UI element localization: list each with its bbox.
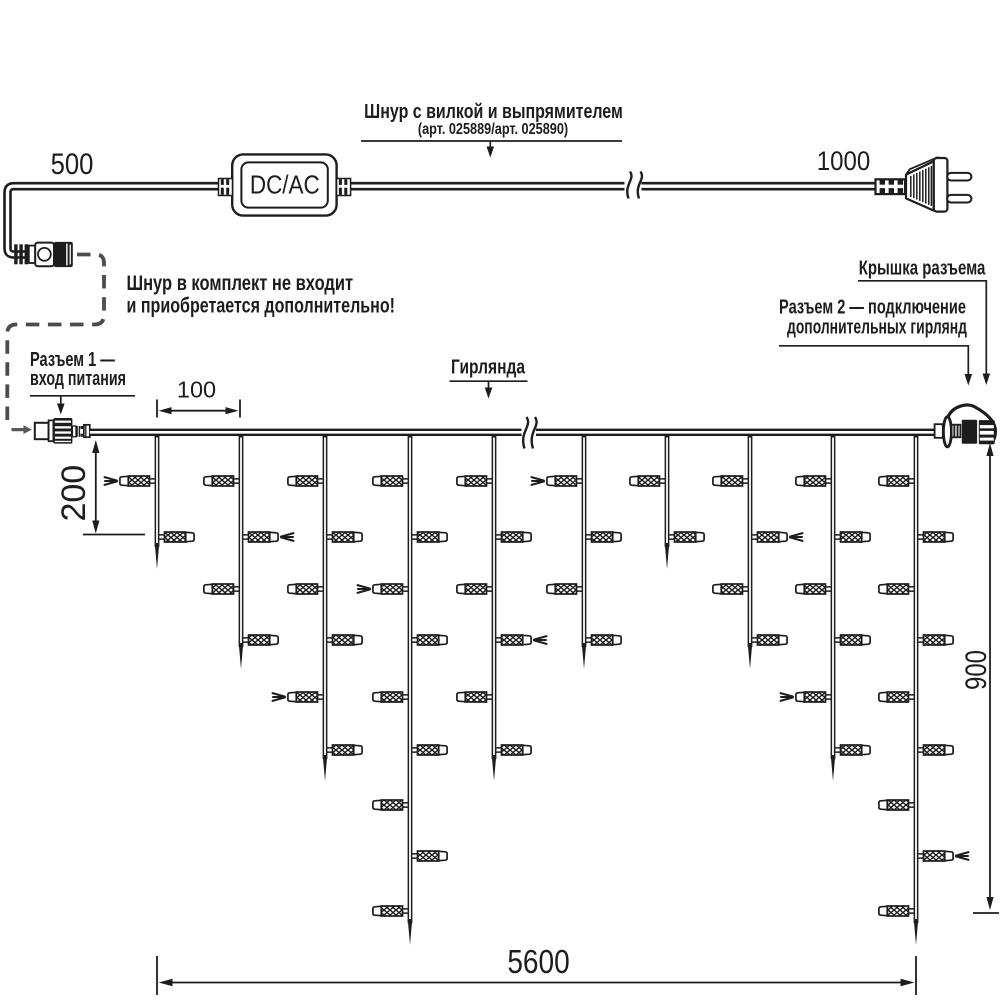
svg-text:Крышка разъема: Крышка разъема — [859, 256, 986, 279]
svg-text:и приобретается дополнительно!: и приобретается дополнительно! — [127, 293, 395, 317]
svg-text:Шнур с вилкой и выпрямителем: Шнур с вилкой и выпрямителем — [364, 99, 623, 122]
svg-text:100: 100 — [177, 377, 216, 403]
svg-text:(арт. 025889/арт. 025890): (арт. 025889/арт. 025890) — [418, 121, 569, 138]
svg-text:900: 900 — [958, 650, 992, 690]
svg-text:5600: 5600 — [507, 944, 569, 981]
svg-text:DC/AC: DC/AC — [250, 171, 320, 200]
svg-text:дополнительных гирлянд: дополнительных гирлянд — [787, 315, 967, 338]
svg-text:Шнур в комплект не входит: Шнур в комплект не входит — [127, 272, 354, 295]
svg-text:вход питания: вход питания — [30, 367, 126, 390]
svg-text:1000: 1000 — [817, 147, 870, 177]
svg-text:500: 500 — [51, 148, 94, 181]
svg-text:200: 200 — [55, 465, 93, 522]
svg-text:Гирлянда: Гирлянда — [451, 356, 526, 378]
